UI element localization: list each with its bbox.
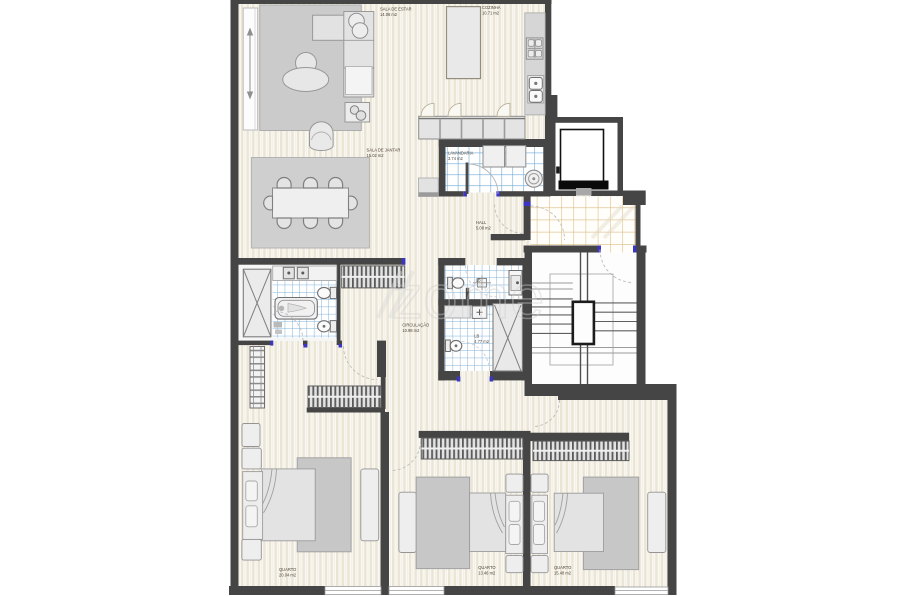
- svg-text:5.08 m2: 5.08 m2: [476, 226, 492, 231]
- svg-text:3.74 m2: 3.74 m2: [448, 156, 464, 161]
- svg-text:HALL: HALL: [476, 220, 487, 225]
- svg-text:14.08 m2: 14.08 m2: [380, 12, 398, 17]
- svg-text:4.77 m2: 4.77 m2: [474, 339, 490, 344]
- svg-text:10.71 m2: 10.71 m2: [482, 11, 500, 16]
- svg-text:QUARTO: QUARTO: [478, 565, 495, 570]
- svg-text:SALA DE JANTAR: SALA DE JANTAR: [367, 148, 401, 153]
- svg-text:13.46 m2: 13.46 m2: [478, 571, 496, 576]
- svg-text:LB: LB: [474, 334, 479, 339]
- svg-text:15.02 m2: 15.02 m2: [367, 153, 385, 158]
- svg-text:SALA DE ESTAR: SALA DE ESTAR: [380, 7, 412, 12]
- svg-text:LAVANDARIA: LAVANDARIA: [448, 151, 474, 156]
- svg-text:15.48 m2: 15.48 m2: [554, 571, 572, 576]
- svg-text:COZINHA: COZINHA: [482, 5, 501, 10]
- svg-text:zome: zome: [392, 263, 545, 331]
- svg-text:20.04 m2: 20.04 m2: [279, 573, 297, 578]
- svg-text:QUARTO: QUARTO: [279, 567, 296, 572]
- svg-text:QUARTO: QUARTO: [554, 565, 571, 570]
